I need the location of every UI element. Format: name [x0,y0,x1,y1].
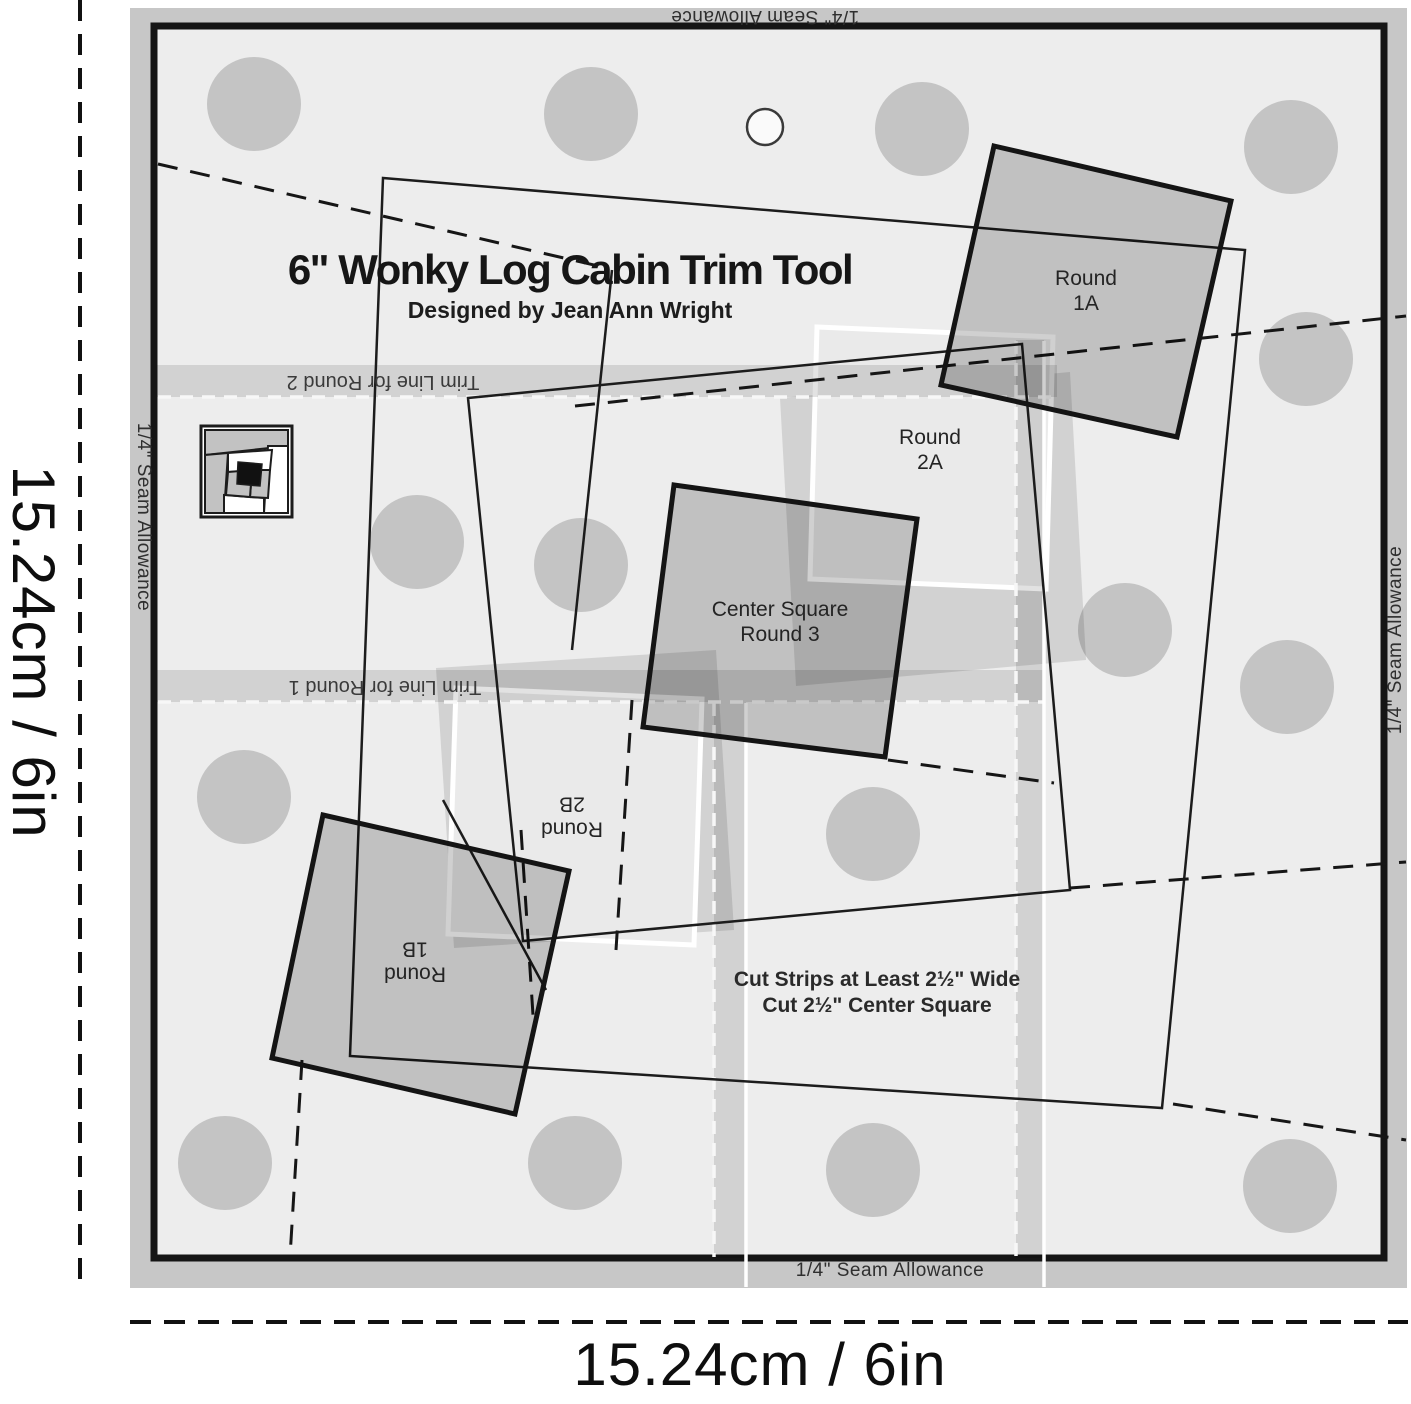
cutting-instructions-line2: Cut 2½" Center Square [717,993,1037,1019]
product-title: 6" Wonky Log Cabin Trim Tool [268,246,872,294]
hang-hole [747,109,783,145]
round-1b-line1: Round [335,961,495,986]
dimension-label-left: 15.24cm / 6in [0,392,68,912]
center-square-line2: Round 3 [680,623,880,648]
seam-allowance-label-right: 1/4" Seam Allowance [1385,530,1407,750]
seam-allowance-label-bottom: 1/4" Seam Allowance [690,1260,1090,1282]
round-1b-line2: 1B [335,936,495,961]
seam-allowance-label-left: 1/4" Seam Allowance [132,407,154,627]
product-image: 6" Wonky Log Cabin Trim Tool Designed by… [0,0,1411,1404]
round-1a-line2: 1A [1006,292,1166,317]
round-2a-line1: Round [850,426,1010,451]
cutting-instructions: Cut Strips at Least 2½" Wide Cut 2½" Cen… [717,967,1037,1020]
dimension-label-bottom: 15.24cm / 6in [460,1330,1060,1400]
trim-line-round1-label: Trim Line for Round 1 [195,674,575,698]
round-1b-label: Round 1B [335,936,495,986]
log-cabin-icon [201,426,292,517]
round-2b-line2: 2B [492,791,652,816]
trim-line-round2-label: Trim Line for Round 2 [193,369,573,393]
round-2b-label: Round 2B [492,791,652,841]
cutting-instructions-line1: Cut Strips at Least 2½" Wide [717,967,1037,993]
product-subtitle: Designed by Jean Ann Wright [268,297,872,324]
round-1a-line1: Round [1006,267,1166,292]
round-2a-label: Round 2A [850,426,1010,476]
center-square-label: Center Square Round 3 [680,598,880,648]
center-square-line1: Center Square [680,598,880,623]
seam-allowance-label-top: 1/4" Seam Allowance [565,5,965,27]
round-2a-line2: 2A [850,451,1010,476]
trim-tool-graphic [0,0,1411,1404]
round-1a-label: Round 1A [1006,267,1166,317]
round-2b-line1: Round [492,816,652,841]
